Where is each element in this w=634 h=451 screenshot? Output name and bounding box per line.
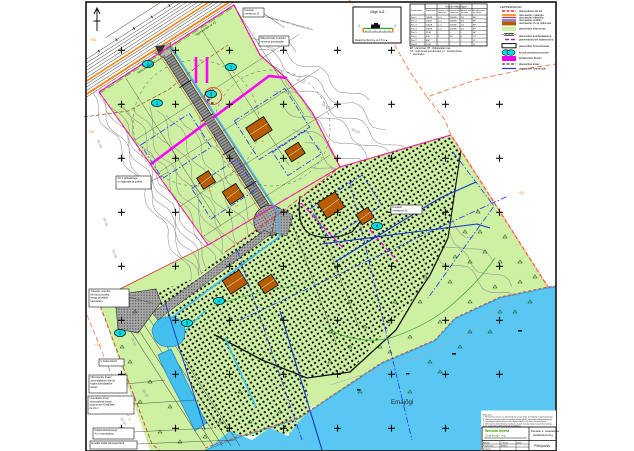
svg-text:T.Tamm: T.Tamm <box>501 442 508 444</box>
svg-text:metskond 31: metskond 31 <box>245 11 260 15</box>
svg-text:kohati: kohati <box>91 385 98 389</box>
svg-text:OsaUhing • reg: OsaUhing • reg <box>485 434 506 438</box>
svg-text:Pos 1: Pos 1 <box>411 17 417 19</box>
svg-text:LEPPEMÄRGID: LEPPEMÄRGID <box>500 5 523 9</box>
svg-text:250/80: 250/80 <box>450 28 457 30</box>
svg-text:likvideeritav õhuliin: likvideeritav õhuliin <box>519 56 542 60</box>
svg-text:+3.0: +3.0 <box>88 130 95 134</box>
svg-text:planeeritav kraav: planeeritav kraav <box>519 62 540 66</box>
svg-text:planeeritava ala piir: planeeritava ala piir <box>519 9 542 13</box>
svg-text:M.Mets: M.Mets <box>501 444 508 447</box>
svg-text:ab: ab <box>261 139 265 143</box>
svg-text:Kuupäev: Kuupäev <box>483 448 491 450</box>
svg-text:HP: HP <box>473 32 477 34</box>
svg-text:Wendla Invest: Wendla Invest <box>485 429 510 433</box>
svg-text:planeeritava tee kaitsevöönd: planeeritava tee kaitsevöönd <box>519 38 554 42</box>
svg-text:Krundi aadress: Krundi aadress <box>411 9 423 12</box>
svg-text:2150: 2150 <box>426 32 432 34</box>
svg-text:Pos 7: Pos 7 <box>411 40 417 42</box>
svg-text:ab: ab <box>333 216 337 220</box>
svg-text:planeeritav juurdepääsetee: planeeritav juurdepääsetee <box>519 34 552 38</box>
svg-text:Pos 3: Pos 3 <box>411 25 417 27</box>
svg-text:Pos 5: Pos 5 <box>411 32 417 34</box>
svg-text:250/80: 250/80 <box>450 21 457 23</box>
svg-text:ab: ab <box>367 224 371 228</box>
svg-text:krundi positsiooninumber: krundi positsiooninumber <box>519 51 549 55</box>
svg-text:13029: 13029 <box>426 28 433 30</box>
svg-text:* - olemasolev: * - olemasolev <box>410 54 425 56</box>
svg-text:+3.0: +3.0 <box>90 38 97 42</box>
svg-text:13026: 13026 <box>426 17 433 19</box>
svg-text:EP - elamumaa, HP - üldkasutat: EP - elamumaa, HP - üldkasutatav maa <box>410 47 451 50</box>
svg-text:1210: 1210 <box>426 44 432 46</box>
svg-text:lubatud arv: lubatud arv <box>438 11 447 14</box>
svg-text:V kaitsevöönd: V kaitsevöönd <box>101 359 118 363</box>
svg-text:on haljasala ja parkla: on haljasala ja parkla <box>118 179 143 183</box>
svg-text:250/80: 250/80 <box>450 17 457 19</box>
svg-text:13028: 13028 <box>426 25 433 27</box>
svg-text:250/80: 250/80 <box>450 25 457 27</box>
svg-text:+3.0: +3.0 <box>518 191 525 195</box>
svg-text:kasutatav): kasutatav) <box>91 299 103 303</box>
svg-text:planeeritav elamumaa: planeeritav elamumaa <box>519 27 546 31</box>
svg-text:ab: ab <box>237 292 241 296</box>
svg-text:+3.0: +3.0 <box>95 343 102 347</box>
svg-text:ise sihtotst: ise sihtotst <box>473 11 482 14</box>
svg-text:+3.0: +3.0 <box>359 225 366 229</box>
svg-text:ab: ab <box>208 189 212 193</box>
svg-text:rruselisus: rruselisus <box>461 11 468 14</box>
svg-text:detailplaneering: detailplaneering <box>533 433 553 437</box>
svg-text:metskond 31: metskond 31 <box>393 208 408 212</box>
svg-text:Emajõe kalda piiranguvöönd: Emajõe kalda piiranguvöönd <box>92 441 125 445</box>
svg-text:Pos 2: Pos 2 <box>411 21 417 23</box>
svg-text:13027: 13027 <box>426 21 433 23</box>
svg-text:Maapinna tõstmine ca 0.5 m ■: Maapinna tõstmine ca 0.5 m ■ <box>355 39 388 42</box>
svg-text:4 m (veeseadus): 4 m (veeseadus) <box>95 431 114 435</box>
svg-text:Krundi pind m2: Krundi pind m2 <box>426 9 437 12</box>
svg-text:lubatud ehi: lubatud ehi <box>450 11 459 14</box>
svg-text:Projekteeris: Projekteeris <box>483 444 494 447</box>
svg-text:OT - tootmismaa (pumbamaja), L: OT - tootmismaa (pumbamaja), LT - transp… <box>410 50 462 53</box>
svg-text:planeeritav veetorustik: planeeritav veetorustik <box>519 67 547 71</box>
svg-text:soovitud juurdepääs: soovitud juurdepääs <box>261 39 285 43</box>
svg-text:ab: ab <box>235 204 239 208</box>
svg-text:Arhitekt: Arhitekt <box>483 441 490 444</box>
svg-text:ab: ab <box>270 293 274 297</box>
svg-text:Pos 8: Pos 8 <box>411 44 417 46</box>
svg-text:planeeritav hoonestusala: planeeritav hoonestusala <box>519 44 549 48</box>
svg-text:Põhijoonis: Põhijoonis <box>534 444 550 448</box>
svg-text:Krundi ehitusõigus: Krundi ehitusõigus <box>445 5 467 9</box>
svg-text:Pos 6: Pos 6 <box>411 36 417 38</box>
svg-text:ab: ab <box>297 161 301 165</box>
svg-text:olemasolev õu ja põllumaa: olemasolev õu ja põllumaa <box>519 21 551 25</box>
svg-text:Lõige A-A: Lõige A-A <box>370 10 385 14</box>
svg-text:Pos 4: Pos 4 <box>411 28 417 30</box>
svg-text:ca 10 m: ca 10 m <box>90 406 99 410</box>
